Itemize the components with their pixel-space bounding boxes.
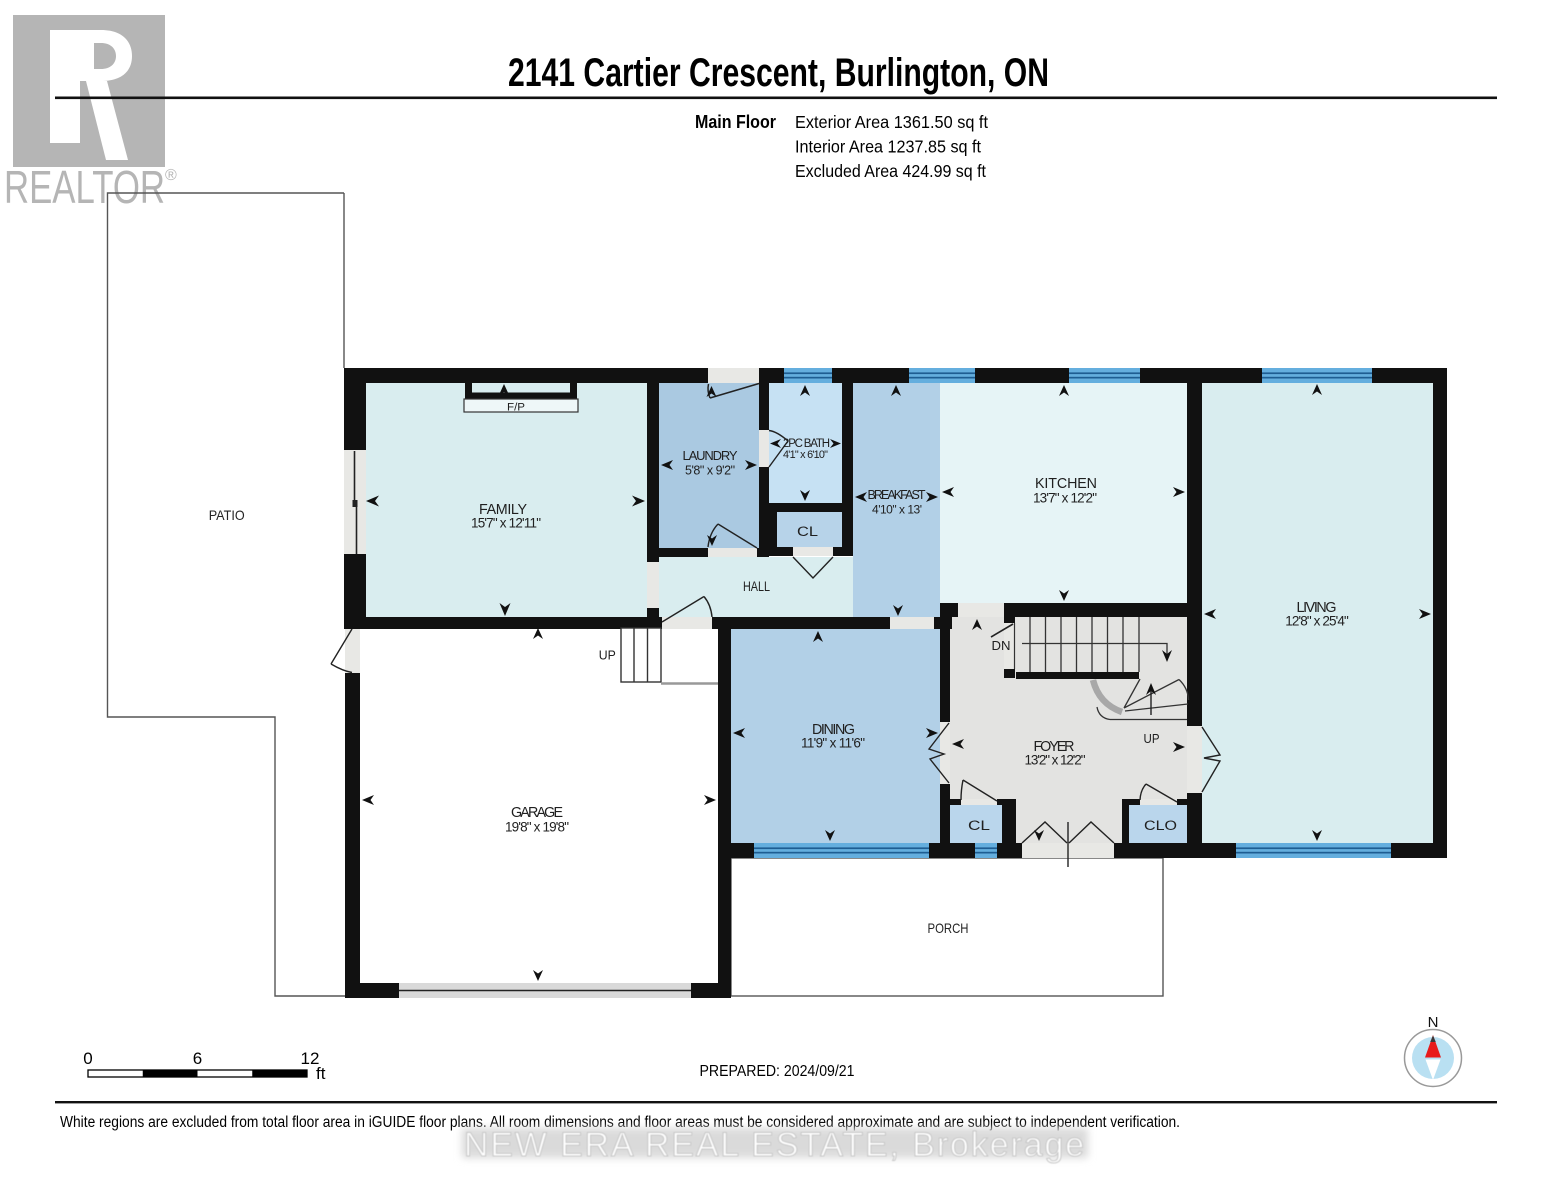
svg-text:UP: UP [599,647,616,662]
svg-text:11'9" x 11'6": 11'9" x 11'6" [801,736,865,751]
svg-text:19'8" x 19'8": 19'8" x 19'8" [505,820,569,835]
svg-text:UP: UP [1144,731,1160,746]
svg-text:HALL: HALL [743,578,770,594]
svg-text:Interior Area 1237.85 sq ft: Interior Area 1237.85 sq ft [795,137,981,157]
svg-text:4'10" x 13': 4'10" x 13' [872,503,922,517]
svg-text:F/P: F/P [507,402,525,414]
svg-text:REALTOR: REALTOR [4,161,165,213]
svg-text:Main Floor: Main Floor [695,112,776,132]
svg-text:PREPARED: 2024/09/21: PREPARED: 2024/09/21 [700,1063,855,1080]
svg-text:BREAKFAST: BREAKFAST [868,488,926,502]
svg-text:15'7" x 12'11": 15'7" x 12'11" [471,516,541,531]
svg-text:N: N [1428,1014,1439,1031]
svg-text:13'7" x 12'2": 13'7" x 12'2" [1033,491,1097,506]
svg-text:0: 0 [83,1049,92,1068]
svg-text:NEW ERA REAL ESTATE, Brokerage: NEW ERA REAL ESTATE, Brokerage [464,1126,1086,1164]
svg-text:LAUNDRY: LAUNDRY [683,448,738,463]
svg-text:CL: CL [968,818,991,833]
svg-text:PORCH: PORCH [928,921,969,936]
svg-text:CL: CL [797,524,819,539]
svg-text:Exterior Area 1361.50 sq ft: Exterior Area 1361.50 sq ft [795,112,988,132]
svg-text:Excluded Area 424.99 sq ft: Excluded Area 424.99 sq ft [795,161,986,181]
svg-text:12'8" x 25'4": 12'8" x 25'4" [1285,614,1349,629]
svg-text:ft: ft [316,1064,326,1083]
svg-text:2141 Cartier Crescent, Burling: 2141 Cartier Crescent, Burlington, ON [508,51,1049,95]
svg-text:5'8" x 9'2": 5'8" x 9'2" [685,464,735,478]
svg-text:®: ® [165,167,177,184]
svg-text:PATIO: PATIO [209,508,245,523]
svg-text:13'2" x 12'2": 13'2" x 12'2" [1025,753,1086,768]
svg-text:CLO: CLO [1144,818,1177,833]
svg-text:6: 6 [193,1049,202,1068]
svg-text:DN: DN [992,638,1011,653]
svg-text:4'1" x 6'10": 4'1" x 6'10" [783,449,828,461]
